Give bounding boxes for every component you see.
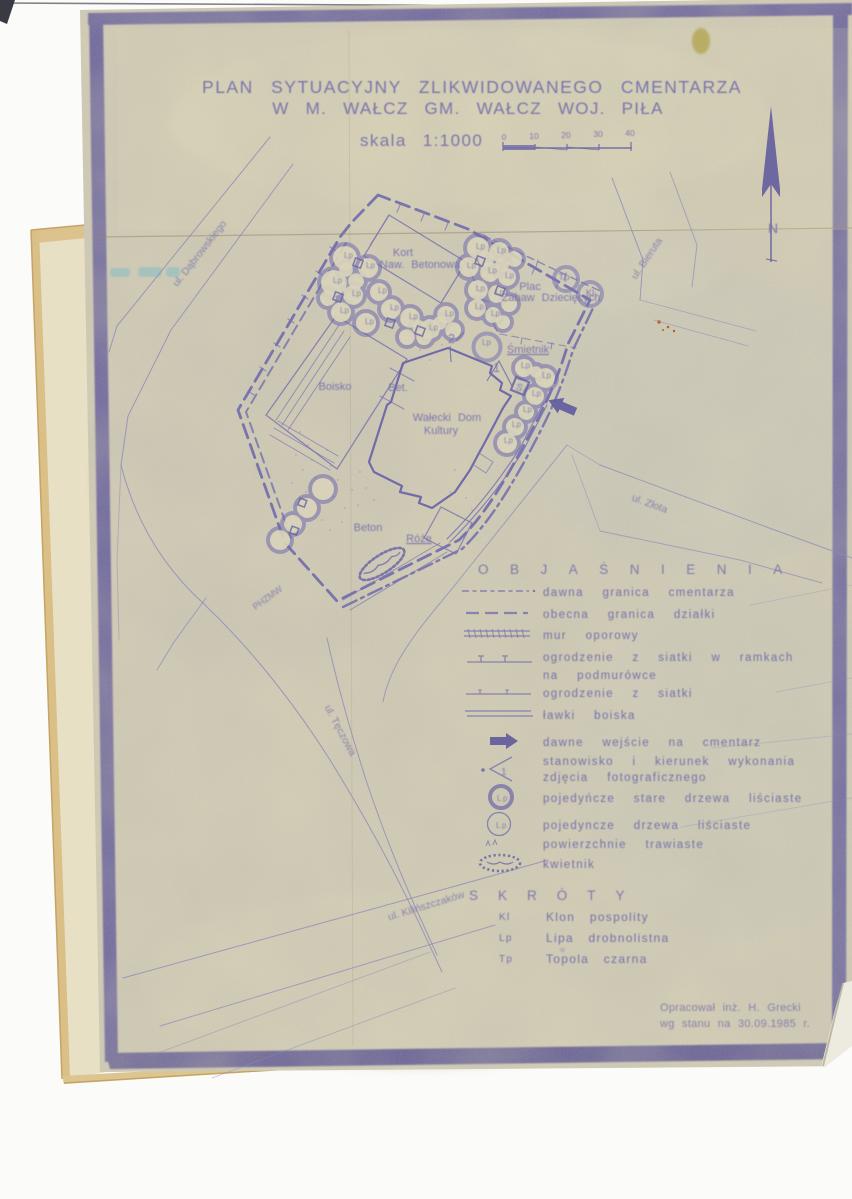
svg-text:Wałecki Dom: Wałecki Dom bbox=[413, 412, 481, 424]
svg-text:kwietnik: kwietnik bbox=[543, 859, 595, 871]
svg-text:Lipa drobnolistna: Lipa drobnolistna bbox=[546, 931, 670, 945]
svg-text:ogrodzenie z siatki w ramkach: ogrodzenie z siatki w ramkach bbox=[543, 652, 794, 664]
svg-text:Lp: Lp bbox=[488, 266, 497, 275]
svg-text:Lp: Lp bbox=[504, 436, 513, 445]
svg-text:W M. WAŁCZ GM. WAŁCZ WOJ. PIŁA: W M. WAŁCZ GM. WAŁCZ WOJ. PIŁA bbox=[272, 99, 663, 118]
svg-text:dawne wejście na cmentarz: dawne wejście na cmentarz bbox=[543, 737, 761, 749]
svg-text:Kultury: Kultury bbox=[424, 425, 459, 437]
svg-text:zdjęcia fotograficznego: zdjęcia fotograficznego bbox=[543, 772, 707, 784]
svg-text:Lp: Lp bbox=[523, 405, 532, 414]
svg-text:Lp: Lp bbox=[475, 302, 484, 311]
svg-text:Śmietnik: Śmietnik bbox=[507, 343, 550, 356]
svg-text:Lp: Lp bbox=[378, 286, 387, 295]
svg-text:Lp: Lp bbox=[390, 303, 399, 312]
svg-text:obecna granica działki: obecna granica działki bbox=[543, 609, 716, 621]
svg-text:Lp: Lp bbox=[476, 284, 485, 293]
svg-text:0: 0 bbox=[502, 132, 507, 142]
svg-text:Tp: Tp bbox=[499, 954, 513, 965]
svg-text:Lp: Lp bbox=[532, 389, 541, 398]
svg-text:1: 1 bbox=[501, 767, 508, 778]
svg-text:PLAN SYTUACYJNY ZLIKWIDOWANEGO: PLAN SYTUACYJNY ZLIKWIDOWANEGO CMENTARZA bbox=[202, 77, 742, 97]
svg-text:ławki boiska: ławki boiska bbox=[543, 710, 636, 722]
svg-text:Lp: Lp bbox=[409, 312, 418, 321]
svg-text:Lp: Lp bbox=[482, 338, 491, 347]
svg-text:Lp: Lp bbox=[476, 242, 485, 251]
svg-text:dawna granica cmentarza: dawna granica cmentarza bbox=[543, 587, 735, 599]
svg-text:wg stanu na 30.09.1985 r.: wg stanu na 30.09.1985 r. bbox=[659, 1018, 810, 1030]
svg-text:Naw. Betonowa: Naw. Betonowa bbox=[380, 259, 461, 271]
svg-text:Lp: Lp bbox=[365, 317, 374, 326]
svg-text:Lp: Lp bbox=[512, 420, 521, 429]
svg-text:OBJAŚNIENIA: OBJAŚNIENIA bbox=[478, 562, 804, 577]
svg-text:Klon pospolity: Klon pospolity bbox=[546, 910, 649, 924]
svg-text:10: 10 bbox=[529, 131, 539, 141]
svg-text:na podmurówce: na podmurówce bbox=[543, 670, 657, 682]
svg-text:Lp: Lp bbox=[445, 309, 454, 318]
svg-text:Kort: Kort bbox=[393, 247, 413, 259]
svg-text:Tp: Tp bbox=[558, 272, 569, 283]
svg-text:Lp: Lp bbox=[366, 261, 375, 270]
svg-text:skala 1:1000: skala 1:1000 bbox=[360, 131, 483, 150]
svg-text:Lp: Lp bbox=[344, 251, 353, 260]
svg-text:40: 40 bbox=[625, 128, 635, 138]
svg-text:ogrodzenie z siatki: ogrodzenie z siatki bbox=[543, 688, 693, 700]
svg-text:SKRÓTY: SKRÓTY bbox=[469, 888, 645, 903]
svg-text:Lp: Lp bbox=[497, 246, 506, 255]
svg-text:Lp: Lp bbox=[333, 276, 342, 285]
svg-text:Kl: Kl bbox=[499, 912, 511, 923]
svg-text:mur oporowy: mur oporowy bbox=[543, 630, 639, 642]
svg-text:20: 20 bbox=[561, 130, 571, 140]
svg-text:Lp: Lp bbox=[467, 261, 476, 270]
svg-text:Lp: Lp bbox=[496, 821, 508, 830]
svg-text:Beton: Beton bbox=[354, 522, 383, 534]
svg-text:Lp: Lp bbox=[340, 306, 349, 315]
svg-text:powierzchnie trawiaste: powierzchnie trawiaste bbox=[543, 839, 704, 851]
svg-text:Opracował inż. H. Grecki: Opracował inż. H. Grecki bbox=[660, 1002, 801, 1014]
svg-text:Topola czarna: Topola czarna bbox=[546, 952, 648, 966]
svg-text:pojedyncze drzewa liściaste: pojedyncze drzewa liściaste bbox=[543, 820, 751, 832]
svg-text:1: 1 bbox=[493, 361, 500, 375]
svg-text:Lp: Lp bbox=[429, 323, 438, 332]
svg-text:Boisko: Boisko bbox=[318, 381, 351, 393]
svg-text:N: N bbox=[768, 220, 778, 236]
svg-text:Lp: Lp bbox=[499, 933, 513, 944]
svg-text:Bet.: Bet. bbox=[388, 382, 408, 394]
svg-text:Lp: Lp bbox=[505, 271, 514, 280]
svg-text:Lp: Lp bbox=[521, 361, 530, 370]
svg-text:pojedyńcze stare drzewa liścia: pojedyńcze stare drzewa liściaste bbox=[543, 793, 803, 805]
svg-text:2: 2 bbox=[448, 332, 455, 346]
svg-text:stanowisko i kierunek wykonani: stanowisko i kierunek wykonania bbox=[543, 756, 795, 768]
svg-text:Lp: Lp bbox=[542, 371, 551, 380]
svg-text:Lp: Lp bbox=[491, 309, 500, 318]
svg-text:Zabaw Dziecięcych: Zabaw Dziecięcych bbox=[502, 292, 601, 304]
svg-text:Róże: Róże bbox=[406, 533, 432, 545]
svg-text:Lp: Lp bbox=[352, 289, 361, 298]
svg-text:Lp: Lp bbox=[497, 794, 509, 803]
svg-text:30: 30 bbox=[593, 129, 603, 139]
